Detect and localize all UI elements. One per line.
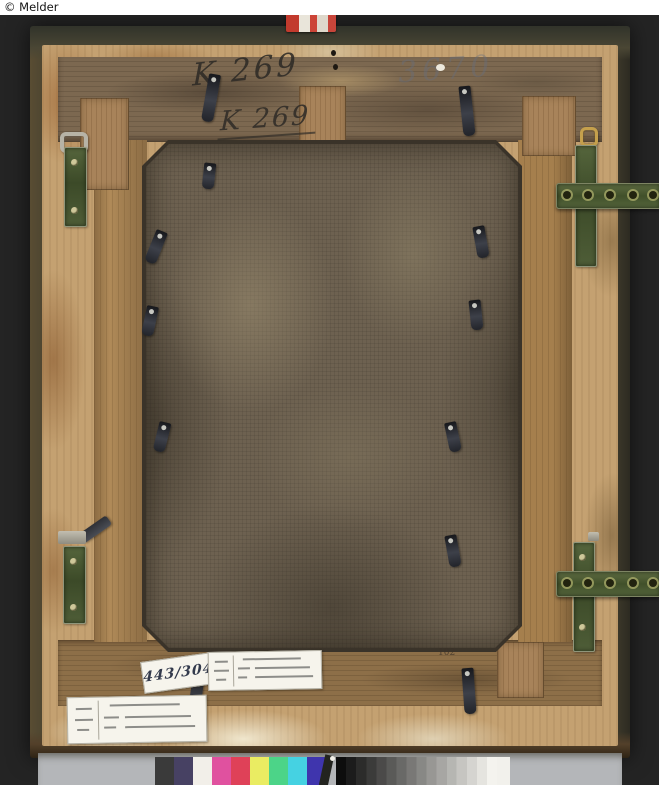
label-printed-inventory-1	[208, 650, 323, 691]
inscription-faint-number: 3670	[397, 49, 496, 91]
bar-hole	[606, 579, 614, 587]
color-patch	[174, 757, 193, 785]
color-patches	[155, 757, 326, 785]
label-text-line	[255, 666, 310, 668]
stretcher-bar-left	[94, 140, 147, 642]
label-text-line	[125, 715, 191, 718]
label-text-line	[238, 676, 247, 678]
color-patch	[250, 757, 269, 785]
label-text-line	[125, 725, 195, 728]
bar-hole	[606, 191, 614, 199]
frame-hole	[333, 64, 338, 70]
label-text-line	[110, 703, 180, 706]
label-handwritten-text: 443/304	[143, 660, 213, 686]
label-text-line	[243, 657, 301, 660]
hanging-ring-right-top	[580, 127, 598, 147]
label-text-line	[214, 670, 229, 672]
bar-hole	[649, 579, 657, 587]
white-speck	[436, 64, 445, 71]
stretcher-block-top-right	[522, 96, 576, 156]
bar-hole	[629, 579, 637, 587]
inscription-k269-lower: K 269	[218, 99, 317, 140]
top-edge-painted-block	[286, 14, 336, 32]
canvas-recess	[142, 140, 522, 652]
label-text-line	[255, 675, 313, 678]
screw-icon	[579, 624, 586, 631]
screw-icon	[70, 604, 77, 611]
label-text-line	[104, 716, 119, 718]
inscription-corner-number: 102	[438, 648, 455, 658]
color-patch	[212, 757, 231, 785]
photo-painting-verso: K 269 K 269 3670 102 443/304	[0, 0, 659, 785]
screw-icon	[579, 554, 586, 561]
small-tag-right-bottom	[588, 532, 599, 541]
bar-hole	[629, 191, 637, 199]
label-text-line	[104, 726, 116, 728]
label-divider	[233, 656, 235, 687]
frame-hole	[331, 50, 336, 56]
bar-hole	[584, 191, 592, 199]
bar-hole	[584, 579, 592, 587]
label-text-line	[216, 679, 226, 681]
bar-hole	[649, 191, 657, 199]
bar-hole	[563, 579, 571, 587]
label-text-line	[75, 719, 93, 721]
color-patch	[193, 757, 212, 785]
bar-hole	[563, 191, 571, 199]
color-patch	[231, 757, 250, 785]
color-patch	[288, 757, 307, 785]
label-text-line	[76, 708, 92, 710]
label-text-line	[215, 661, 228, 663]
grayscale-strip	[336, 757, 497, 785]
screw-icon	[71, 207, 78, 214]
copyright-strip: © Melder	[0, 0, 659, 15]
color-patch	[155, 757, 174, 785]
label-printed-inventory-2	[67, 695, 208, 744]
stretcher-block-bottom-right	[497, 642, 544, 698]
stretcher-bar-right	[518, 140, 572, 642]
hanging-bracket-left-bottom	[58, 531, 86, 544]
screw-icon	[71, 159, 78, 166]
white-speck	[330, 756, 335, 761]
label-text-line	[77, 729, 89, 731]
color-patch	[269, 757, 288, 785]
label-text-line	[238, 667, 250, 669]
copyright-text: © Melder	[4, 0, 58, 15]
grayscale-white-end	[497, 757, 510, 785]
canvas-back	[146, 144, 518, 648]
label-divider	[98, 701, 100, 740]
screw-icon	[70, 558, 77, 565]
